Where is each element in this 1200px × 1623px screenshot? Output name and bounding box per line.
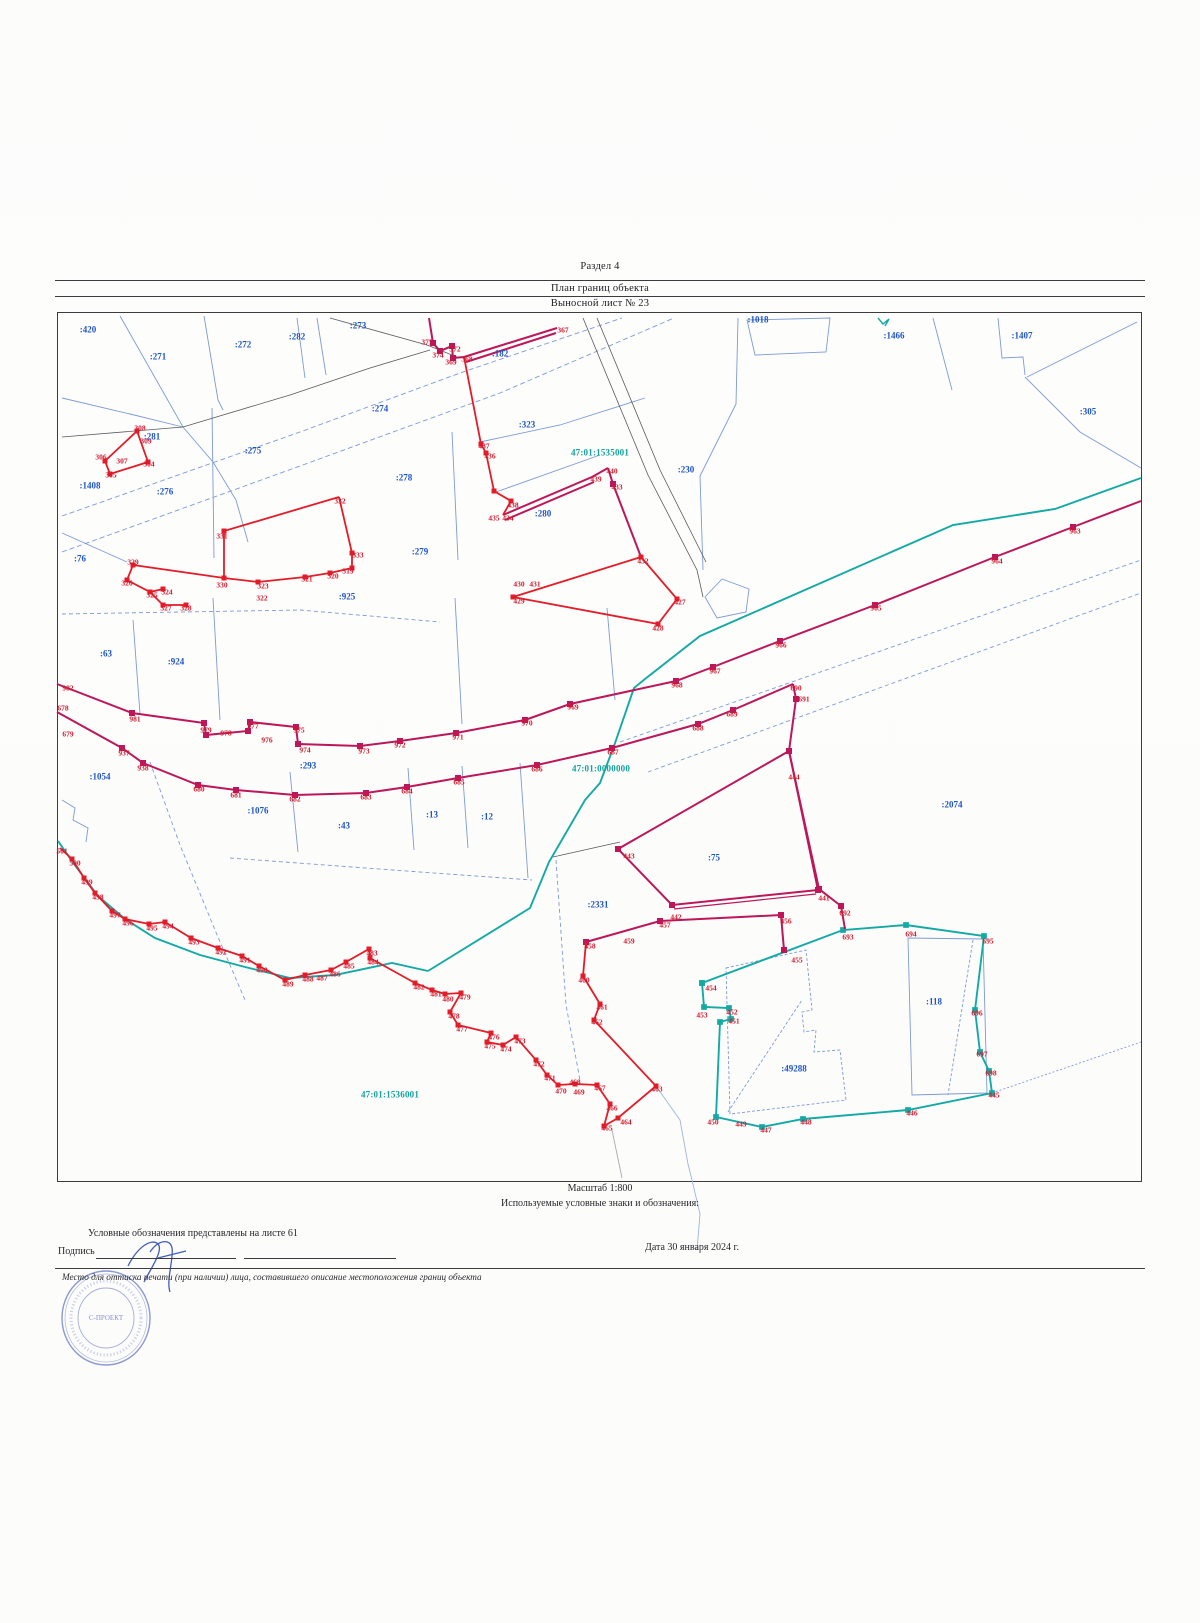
parcel-line	[452, 432, 458, 560]
symbols-note: Используемые условные знаки и обозначени…	[0, 1198, 1200, 1209]
boundary-segment	[586, 915, 784, 950]
red-segment	[464, 357, 511, 515]
parcel-line	[230, 858, 532, 880]
map-drawing: С-ПРОЕКТ	[0, 0, 1200, 1623]
survey-lines	[62, 318, 706, 857]
parcel-line	[700, 318, 738, 570]
parcel-line	[612, 1130, 622, 1178]
teal-parcel-boundary	[702, 925, 992, 1127]
parcel-line	[150, 762, 245, 1000]
scale-note: Масштаб 1:800	[0, 1183, 1200, 1194]
round-stamp: С-ПРОЕКТ	[62, 1271, 150, 1365]
signature-line-2	[244, 1258, 396, 1259]
boundary-zigzag	[429, 318, 464, 358]
parcel-line	[290, 763, 528, 878]
stamp-center-text: С-ПРОЕКТ	[89, 1314, 124, 1322]
parcel-75-boundary	[618, 751, 818, 905]
seal-note: Место для оттиска печати (при наличии) л…	[62, 1272, 482, 1282]
parcel-polygon	[705, 579, 749, 618]
parcel-line	[204, 316, 223, 410]
parcel-line	[480, 398, 645, 442]
road-line-lower	[57, 684, 793, 795]
parcel-line	[992, 1042, 1141, 1093]
parcel-line	[948, 940, 973, 1095]
parcel-49288-outline	[726, 950, 846, 1114]
legend-note: Условные обозначения представлены на лис…	[88, 1228, 298, 1239]
cadastral-plan-page: Раздел 4 План границ объекта Выносной ли…	[0, 0, 1200, 1623]
road-edge-dashed	[62, 318, 622, 516]
parcel-line	[212, 408, 214, 558]
boundary-segment	[464, 328, 557, 362]
red-triangle	[105, 431, 148, 474]
red-long-curve	[60, 848, 656, 1126]
parcel-line	[62, 533, 127, 562]
red-boundaries	[60, 357, 677, 1126]
boundary-segment	[503, 468, 608, 520]
parcel-line	[62, 398, 183, 427]
parcel-line	[556, 860, 580, 1080]
road-edge-dashed	[620, 560, 1141, 772]
survey-line	[597, 318, 706, 562]
parcel-line	[297, 318, 305, 378]
footer-divider	[55, 1268, 1145, 1269]
parcel-outline-lines	[62, 316, 1141, 1250]
boundary-segment	[674, 894, 816, 909]
survey-line	[62, 350, 430, 437]
red-polygon	[513, 557, 677, 624]
signature-line-1	[96, 1258, 236, 1259]
road-edge-dashed	[62, 318, 674, 552]
parcel-line	[62, 800, 88, 842]
boundary-segment	[608, 468, 641, 557]
parcel-line	[133, 598, 615, 724]
survey-line	[330, 318, 457, 357]
survey-line	[583, 318, 703, 597]
date-label: Дата 30 января 2024 г.	[645, 1242, 739, 1253]
parcel-line	[933, 318, 1141, 468]
parcel-line	[728, 1000, 802, 1112]
parcel-line	[62, 610, 440, 622]
survey-line	[553, 842, 620, 857]
parcel-polygon	[747, 318, 830, 355]
parcel-line	[317, 318, 326, 375]
signature-label: Подпись	[58, 1246, 95, 1257]
teal-mark	[878, 318, 889, 326]
stream-line	[656, 1086, 700, 1250]
